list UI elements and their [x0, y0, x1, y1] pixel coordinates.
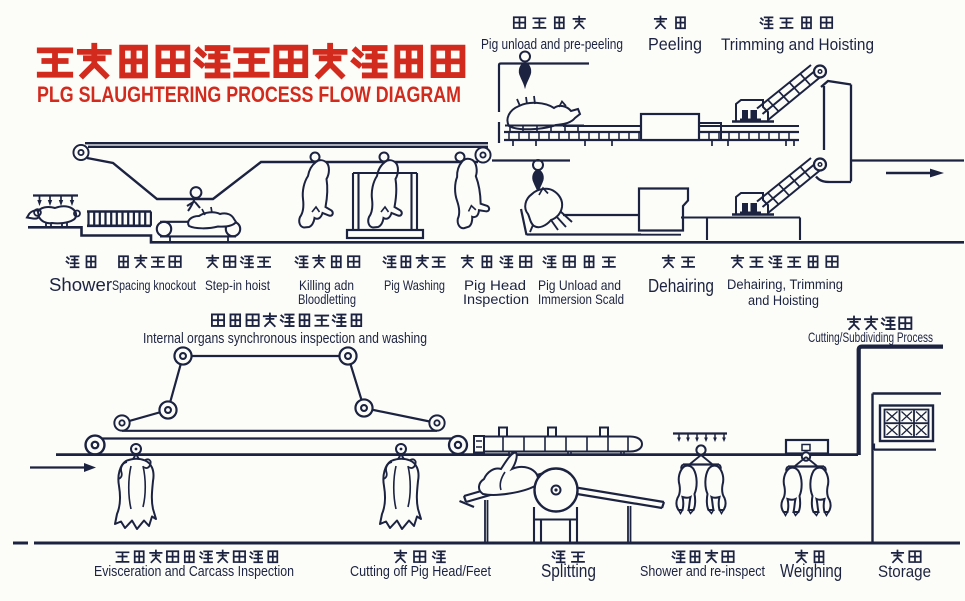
svg-text:Pig unload and pre-peeling: Pig unload and pre-peeling: [481, 37, 623, 53]
svg-text:Dehairing, Trimming: Dehairing, Trimming: [727, 277, 843, 292]
svg-text:Splitting: Splitting: [541, 561, 596, 581]
svg-text:Shower: Shower: [49, 275, 112, 295]
svg-text:Storage: Storage: [878, 562, 931, 581]
svg-text:Trimming and Hoisting: Trimming and Hoisting: [721, 35, 874, 54]
svg-text:Immersion Scald: Immersion Scald: [538, 291, 624, 307]
svg-text:Step-in hoist: Step-in hoist: [205, 277, 270, 293]
svg-text:Bloodletting: Bloodletting: [298, 291, 356, 307]
svg-text:Dehairing: Dehairing: [648, 276, 714, 296]
svg-text:Evisceration and Carcass Inspe: Evisceration and Carcass Inspection: [94, 563, 294, 580]
svg-text:PLG SLAUGHTERING PROCESS FLOW: PLG SLAUGHTERING PROCESS FLOW DIAGRAM: [37, 82, 461, 107]
svg-text:Internal organs synchronous in: Internal organs synchronous inspection a…: [143, 330, 427, 347]
svg-text:Inspection: Inspection: [463, 291, 529, 307]
svg-text:and Hoisting: and Hoisting: [748, 293, 819, 308]
svg-text:Cutting off Pig Head/Feet: Cutting off Pig Head/Feet: [350, 563, 492, 580]
svg-text:Spacing knockout: Spacing knockout: [112, 277, 196, 293]
svg-text:Weighing: Weighing: [780, 561, 842, 581]
svg-text:Cutting/Subdividing Process: Cutting/Subdividing Process: [808, 329, 933, 345]
svg-text:Peeling: Peeling: [648, 34, 702, 54]
svg-text:Pig Washing: Pig Washing: [384, 277, 445, 293]
svg-text:Shower and re-inspect: Shower and re-inspect: [640, 563, 766, 580]
